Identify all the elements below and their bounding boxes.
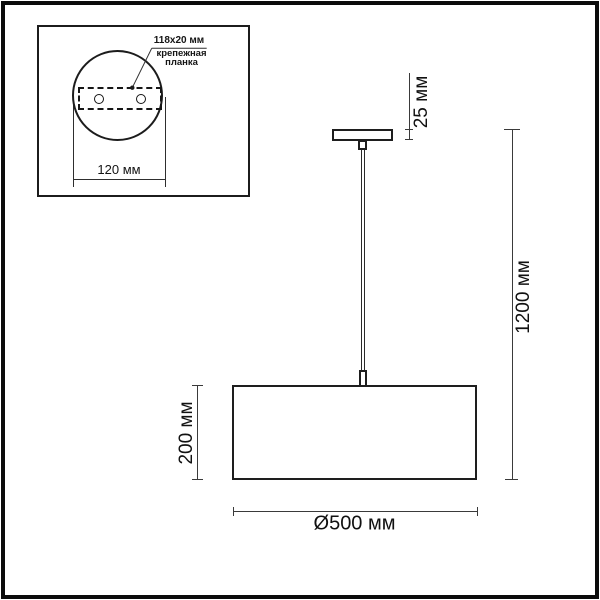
overall-height-tick-top [504, 129, 520, 130]
shade-height-tick-top [192, 385, 203, 386]
overall-height-label: 1200 мм [513, 260, 535, 334]
mount-detail-content: 118x20 мм крепежная планка 120 мм [39, 27, 248, 195]
plate-width-dimension-line [73, 179, 166, 180]
canopy-connector [358, 140, 367, 150]
shade-diameter-dimension-line [233, 511, 478, 512]
plate-width-label: 120 мм [73, 162, 166, 177]
suspension-rod [361, 150, 365, 371]
shade-height-tick-bottom [192, 479, 203, 480]
plate-name-line2: планка [151, 59, 212, 68]
plate-size-label: 118x20 мм [151, 35, 207, 46]
shade-height-label: 200 мм [176, 401, 198, 464]
canopy-height-tick-bottom [405, 139, 413, 140]
lamp-shade [232, 385, 477, 480]
shade-diameter-label: Ø500 мм [314, 513, 396, 536]
leader-dot [130, 86, 134, 90]
plate-name-label: крепежная планка [151, 50, 212, 67]
mount-detail-inset: 118x20 мм крепежная планка 120 мм [37, 25, 250, 197]
canopy-height-label: 25 мм [411, 75, 433, 128]
lamp-dimension-diagram: 118x20 мм крепежная планка 120 мм 25 мм … [0, 0, 600, 600]
canopy-height-tick-top [405, 129, 413, 130]
shade-diameter-tick-left [233, 507, 234, 516]
overall-height-tick-bottom [505, 479, 518, 480]
shade-diameter-tick-right [477, 507, 478, 516]
